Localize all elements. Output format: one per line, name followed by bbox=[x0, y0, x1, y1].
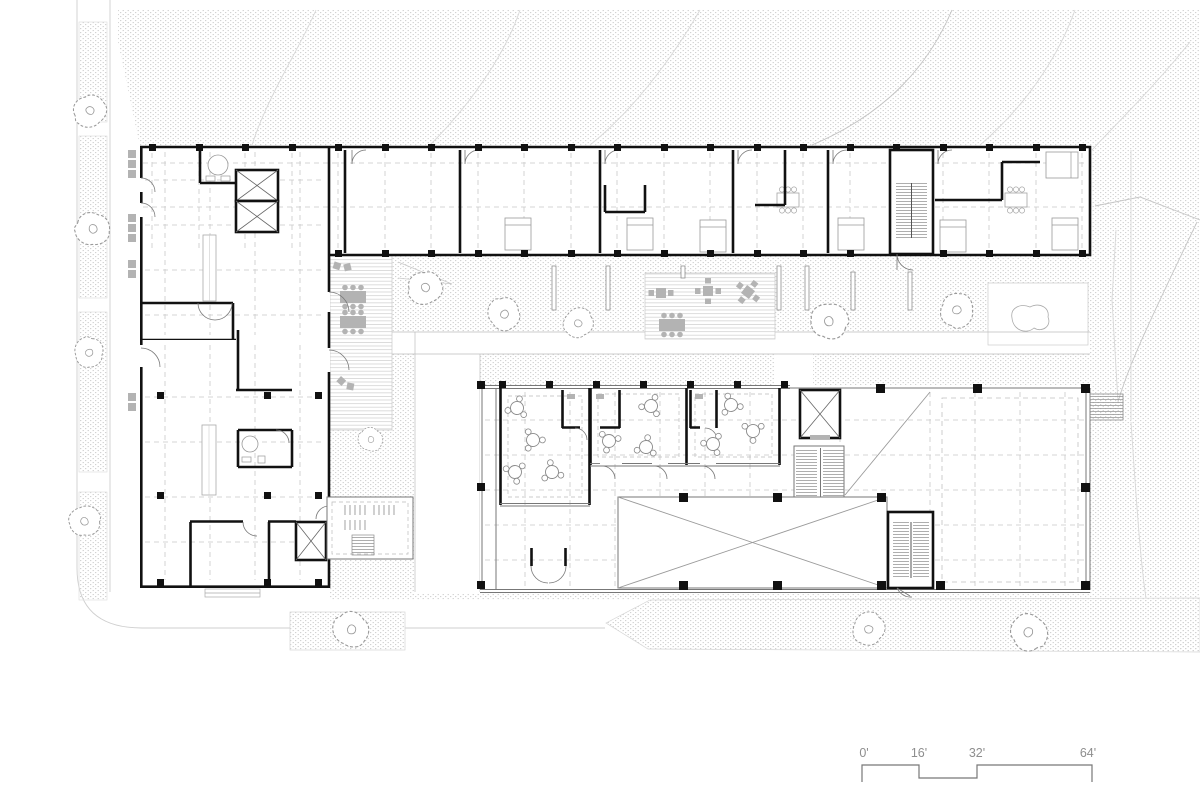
floor-plan-drawing: 0' 16' 32' 64' bbox=[0, 0, 1200, 800]
dining-table bbox=[1005, 187, 1027, 213]
scale-label-64: 64' bbox=[1080, 746, 1096, 760]
elevator-wing bbox=[296, 522, 326, 560]
planter-boxes bbox=[128, 150, 136, 411]
lower-building bbox=[477, 381, 1123, 597]
floor-plan-sheet: 0' 16' 32' 64' bbox=[0, 0, 1200, 800]
stair-core-lower bbox=[888, 512, 933, 597]
bed bbox=[1046, 152, 1078, 178]
bed bbox=[1052, 218, 1078, 250]
walkway-entry bbox=[775, 332, 813, 388]
scale-bar-line bbox=[862, 765, 1092, 782]
stair-core-upper bbox=[890, 150, 933, 270]
exterior-stair-east bbox=[1090, 394, 1123, 420]
scale-bar: 0' 16' 32' 64' bbox=[859, 746, 1096, 782]
outdoor-table bbox=[340, 285, 366, 310]
bed bbox=[940, 220, 966, 252]
scale-label-0: 0' bbox=[859, 746, 868, 760]
outdoor-table bbox=[340, 310, 366, 335]
ground-stipple-top-band bbox=[118, 10, 1200, 147]
bed bbox=[838, 218, 864, 250]
outdoor-table bbox=[659, 313, 685, 338]
ground-stipple-bottom-band bbox=[606, 598, 1200, 652]
stair-u-lower bbox=[794, 446, 844, 504]
bed bbox=[700, 220, 726, 252]
scale-label-16: 16' bbox=[911, 746, 927, 760]
pond bbox=[1012, 305, 1049, 331]
bed bbox=[505, 218, 531, 250]
walkway-vertical bbox=[415, 332, 480, 594]
scale-label-32: 32' bbox=[969, 746, 985, 760]
small-stair bbox=[352, 535, 374, 555]
bike-room bbox=[327, 497, 413, 559]
facade-columns-top bbox=[149, 144, 1086, 151]
elevator-core-west bbox=[236, 170, 278, 232]
toilet bbox=[221, 176, 230, 181]
entry-steps bbox=[205, 589, 260, 597]
elevator-lower bbox=[800, 390, 840, 439]
bed bbox=[627, 218, 653, 250]
dining-table bbox=[777, 187, 799, 213]
sink bbox=[206, 176, 215, 181]
bathtub bbox=[208, 155, 228, 175]
tree-symbol bbox=[73, 95, 106, 127]
deck-west-boards bbox=[330, 255, 392, 430]
